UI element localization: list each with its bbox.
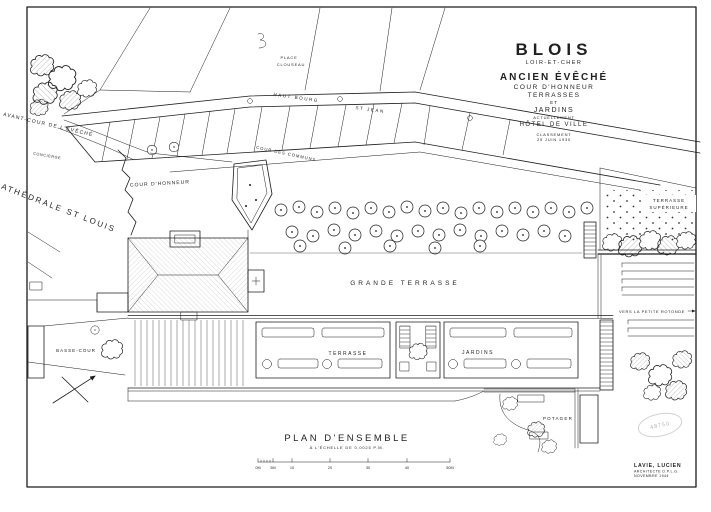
stamp-number: 48750 (650, 421, 671, 431)
site-plan-drawing: AVANT-COUR DE L'ÉVÊCHÉ PLACE CLOUSEAU CO… (0, 0, 711, 512)
scale-tick-6: 50M (446, 466, 453, 470)
label-jardins: JARDINS (462, 350, 494, 356)
cathedral-edge (28, 232, 97, 312)
label-vers-rotonde: VERS LA PETITE ROTONDE (619, 309, 685, 314)
title-department: LOIR-ET-CHER (526, 60, 583, 66)
site-plan-sheet: AVANT-COUR DE L'ÉVÊCHÉ PLACE CLOUSEAU CO… (0, 0, 711, 512)
potager-area (484, 389, 598, 453)
title-city: BLOIS (516, 40, 593, 59)
title-line2: COUR D'HONNEUR (514, 84, 595, 91)
architect-date: NOVEMBRE 1944 (634, 474, 669, 478)
title-line4: ET (550, 100, 558, 105)
scale-tick-0: 0M (255, 466, 260, 470)
title-current-use: HÔTEL DE VILLE (520, 121, 589, 128)
label-terrasse-sup-line2: SUPÉRIEURE (649, 204, 688, 210)
footer-block: PLAN D'ENSEMBLE À L'ÉCHELLE DE 0,0025 P.… (255, 433, 453, 470)
title-line3: TERRASSES (528, 92, 581, 99)
label-terrasse-sup-line1: TERRASSE (653, 198, 685, 203)
scale-tick-2: 10 (290, 466, 294, 470)
label-terrasse: TERRASSE (329, 351, 368, 357)
plan-title: PLAN D'ENSEMBLE (284, 433, 409, 444)
scale-tick-3: 20 (328, 466, 332, 470)
label-basse-cour: BASSE-COUR (56, 348, 96, 353)
tree (169, 142, 179, 152)
signature-block: LAVIE, LUCIEN ARCHITECTE D.P.L.G. NOVEMB… (634, 463, 681, 478)
chapel-cross-icon (252, 277, 260, 285)
avant-cour-foliage (30, 55, 97, 116)
title-block: BLOIS LOIR-ET-CHER ANCIEN ÉVÊCHÉ COUR D'… (500, 40, 608, 142)
scale-tick-4: 30 (366, 466, 370, 470)
architect-name: LAVIE, LUCIEN (634, 463, 681, 469)
architect-title: ARCHITECTE D.P.L.G. (634, 470, 679, 474)
main-building (97, 231, 264, 320)
label-street-part2: ST JEAN (355, 105, 385, 114)
scale-bar (258, 459, 450, 463)
label-grande-terrasse: GRANDE TERRASSE (350, 280, 460, 287)
label-potager: POTAGER (543, 416, 573, 421)
plan-scale-note: À L'ÉCHELLE DE 0,0025 P.M. (310, 445, 385, 450)
cour-honneur-walls (118, 150, 272, 238)
label-cathedrale: CATHÉDRALE ST LOUIS (0, 179, 117, 234)
label-place-line1: PLACE (280, 55, 297, 60)
compass-north-arrow-icon (53, 376, 95, 403)
label-cour-honneur: COUR D'HONNEUR (130, 179, 190, 188)
title-current-use-label: ACTUELLEMENT (533, 115, 575, 120)
title-classification-date: 25 JUIN 1930 (537, 137, 571, 142)
title-line5: JARDINS (534, 107, 574, 114)
terrasse-parterre (256, 322, 390, 378)
streets-and-buildings (62, 8, 700, 190)
label-concierge: CONCIERGE (33, 152, 62, 161)
label-place-line2: CLOUSEAU (277, 62, 305, 67)
fountain-square (396, 322, 440, 378)
tree-allee (275, 201, 593, 254)
archive-stamp: 48750 (636, 410, 684, 441)
scale-tick-5: 40 (405, 466, 409, 470)
scale-tick-1: 5M (270, 466, 275, 470)
title-line1: ANCIEN ÉVÊCHÉ (500, 70, 608, 83)
sloped-bank (130, 320, 246, 386)
label-street-part1: HAUT BOURG (273, 92, 319, 103)
label-cour-communs: COUR DES COMMUNS (256, 145, 317, 163)
